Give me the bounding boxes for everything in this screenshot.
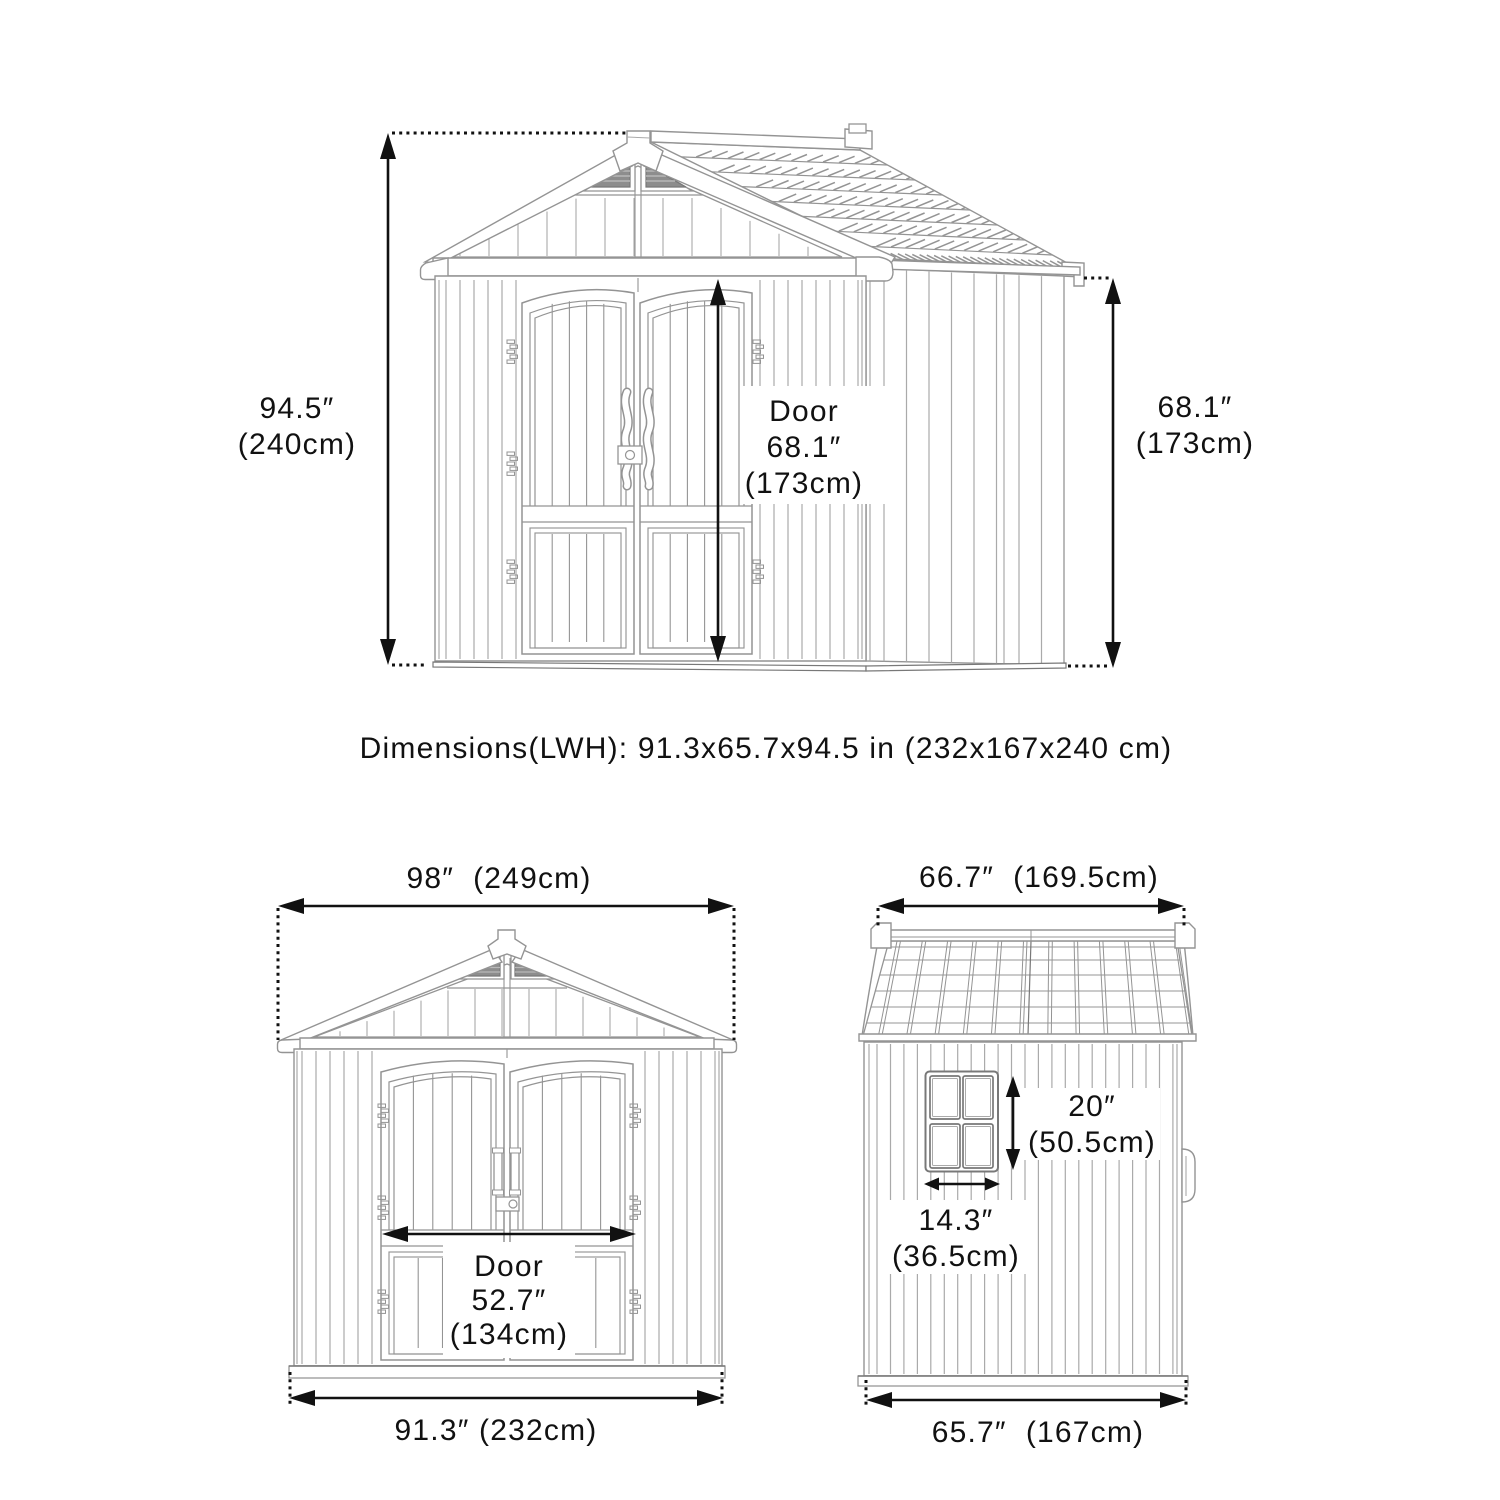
svg-text:14.3″: 14.3″ bbox=[918, 1204, 993, 1237]
svg-text:68.1″: 68.1″ bbox=[1157, 391, 1232, 424]
svg-text:(134cm): (134cm) bbox=[450, 1318, 568, 1351]
svg-text:20″: 20″ bbox=[1068, 1090, 1116, 1123]
svg-text:68.1″: 68.1″ bbox=[766, 431, 841, 464]
svg-text:66.7″ (169.5cm): 66.7″ (169.5cm) bbox=[919, 861, 1159, 894]
svg-text:(36.5cm): (36.5cm) bbox=[892, 1240, 1020, 1273]
svg-text:(50.5cm): (50.5cm) bbox=[1028, 1126, 1156, 1159]
svg-text:94.5″: 94.5″ bbox=[259, 392, 334, 425]
svg-text:(240cm): (240cm) bbox=[238, 428, 356, 461]
svg-text:(173cm): (173cm) bbox=[1136, 427, 1254, 460]
svg-text:(173cm): (173cm) bbox=[745, 467, 863, 500]
svg-text:98″ (249cm): 98″ (249cm) bbox=[406, 862, 591, 895]
svg-text:65.7″ (167cm): 65.7″ (167cm) bbox=[932, 1416, 1145, 1449]
svg-text:91.3″ (232cm): 91.3″ (232cm) bbox=[395, 1414, 598, 1447]
svg-text:Dimensions(LWH): 91.3x65.7x94.: Dimensions(LWH): 91.3x65.7x94.5 in (232x… bbox=[360, 732, 1173, 765]
svg-text:Door: Door bbox=[769, 395, 839, 428]
svg-text:Door: Door bbox=[474, 1250, 544, 1283]
svg-text:52.7″: 52.7″ bbox=[471, 1284, 546, 1317]
